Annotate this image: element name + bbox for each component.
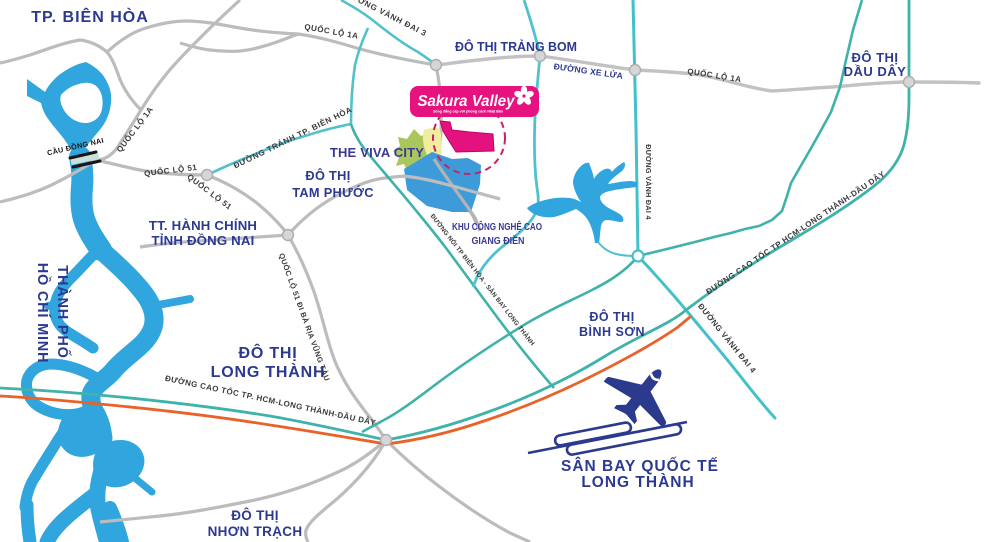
svg-text:ĐÔ THỊ TRẢNG BOM: ĐÔ THỊ TRẢNG BOM	[455, 39, 577, 54]
svg-text:ĐƯỜNG VÀNH ĐAI 4: ĐƯỜNG VÀNH ĐAI 4	[644, 144, 653, 220]
svg-text:TT. HÀNH CHÍNH: TT. HÀNH CHÍNH	[149, 218, 257, 233]
svg-text:TỈNH ĐỒNG NAI: TỈNH ĐỒNG NAI	[152, 233, 255, 248]
svg-text:TP. BIÊN HÒA: TP. BIÊN HÒA	[31, 7, 149, 26]
svg-text:KHU CÔNG NGHỆ CAO: KHU CÔNG NGHỆ CAO	[452, 220, 542, 233]
svg-text:ĐÔ THỊ: ĐÔ THỊ	[231, 508, 279, 523]
svg-text:HỒ CHÍ MINH: HỒ CHÍ MINH	[34, 263, 52, 364]
svg-text:DẦU DÂY: DẦU DÂY	[844, 64, 907, 79]
svg-text:Sống đẳng cấp với phong cách N: Sống đẳng cấp với phong cách Nhật Bản	[433, 109, 503, 114]
svg-text:Sakura Valley: Sakura Valley	[418, 93, 516, 110]
svg-text:LONG THÀNH: LONG THÀNH	[211, 362, 326, 381]
svg-text:LONG THÀNH: LONG THÀNH	[581, 474, 694, 491]
svg-text:ĐÔ THỊ: ĐÔ THỊ	[305, 168, 350, 183]
svg-text:ĐÔ THỊ: ĐÔ THỊ	[238, 343, 297, 362]
svg-text:ĐÔ THỊ: ĐÔ THỊ	[589, 309, 634, 324]
svg-text:ĐÔ THỊ: ĐÔ THỊ	[851, 50, 898, 65]
svg-text:THE VIVA CITY: THE VIVA CITY	[330, 145, 424, 160]
svg-text:NHƠN TRẠCH: NHƠN TRẠCH	[208, 524, 303, 539]
svg-text:SÂN BAY QUỐC TẾ: SÂN BAY QUỐC TẾ	[561, 457, 719, 475]
svg-text:GIANG ĐIỀN: GIANG ĐIỀN	[472, 234, 525, 247]
svg-text:TAM PHƯỚC: TAM PHƯỚC	[292, 185, 374, 200]
svg-text:THÀNH PHỐ: THÀNH PHỐ	[54, 265, 72, 358]
svg-text:BÌNH SƠN: BÌNH SƠN	[579, 324, 645, 339]
